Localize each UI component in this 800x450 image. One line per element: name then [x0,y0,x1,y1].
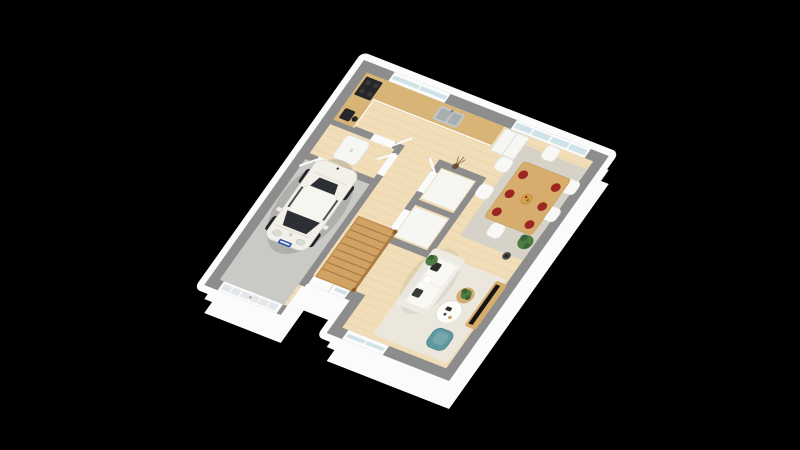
floorplan-render: 3D isometric render of a ground-floor pl… [0,0,800,450]
floorplan-svg [0,0,800,450]
